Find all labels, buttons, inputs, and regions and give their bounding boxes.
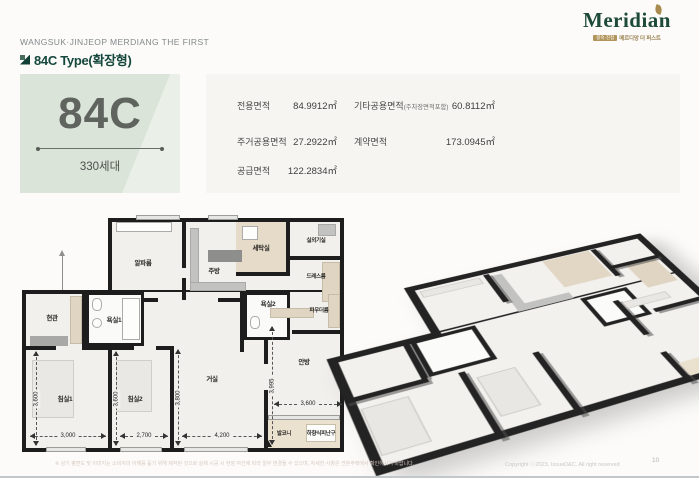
logo-badge: 왕숙·진접: [593, 35, 617, 42]
footer-disclaimer: ※ 상기 평면도 및 이미지는 소비자의 이해를 돕기 위해 제작된 것으로 실…: [55, 460, 485, 467]
toilet: [92, 298, 102, 311]
sink: [92, 318, 102, 328]
page-number: 10: [652, 457, 659, 464]
area-value: 84.9912㎡: [237, 98, 337, 112]
room-label-entrance: 현관: [46, 312, 57, 322]
dimension-bed1-width: 3,000: [30, 436, 106, 437]
window: [184, 447, 248, 452]
room-label-bath1: 욕실1: [107, 314, 122, 324]
area-value: 60.8112㎡: [395, 98, 495, 112]
shoe-cabinet: [70, 296, 82, 344]
room-label-living: 거실: [206, 373, 217, 383]
window: [136, 215, 180, 220]
toilet: [250, 316, 260, 329]
entrance-arrow-icon: [62, 256, 63, 290]
bathtub: [122, 298, 140, 340]
kitchen-counter: [190, 228, 199, 290]
dimension-bed1-height: 3,600: [36, 352, 37, 445]
unit-summary-block: 84C 330세대: [20, 74, 180, 193]
room-label-laundry: 세탁실: [252, 242, 269, 252]
room-label-bed1: 침실1: [58, 393, 73, 403]
room-label-bath2: 욕실2: [261, 298, 276, 308]
area-label: 계약면적: [354, 135, 387, 148]
room-label-balcony: 발코니: [277, 429, 291, 437]
dimension-living-width: 4,200: [182, 436, 262, 437]
room-label-alpha: 알파룸: [134, 257, 151, 267]
logo-subtitle: 메르디앙 더 퍼스트: [619, 34, 661, 42]
room-label-powder: 파우더룸: [309, 306, 328, 314]
room-label-kitchen: 주방: [208, 265, 219, 275]
households-count: 330세대: [20, 158, 180, 174]
dimension-bed2-width: 2,700: [120, 436, 168, 437]
bed: [116, 360, 152, 412]
logo-subtitle-row: 왕숙·진접 메르디앙 더 퍼스트: [567, 34, 687, 42]
page-title: 84C Type(확장형): [20, 50, 131, 69]
dimension-master-height: 3,995: [272, 327, 273, 444]
window: [46, 447, 86, 452]
room-label-master: 안방: [298, 356, 309, 366]
room-label-ac: 실외기실: [306, 236, 325, 244]
washer: [242, 226, 258, 240]
window: [120, 447, 162, 452]
2d-floor-plan: 알파룸 주방 세탁실 실외기실 드레스룸 현관 욕실1 욕실2 파우더룸 침실1…: [22, 214, 346, 456]
kitchen-counter: [190, 282, 246, 291]
area-value: 173.0945㎡: [395, 134, 495, 148]
alpha-closet: [116, 222, 172, 232]
entrance-mat: [30, 336, 68, 346]
balcony-window: [268, 415, 340, 420]
area-value: 27.2922㎡: [237, 134, 337, 148]
project-name: WANGSUK·JINJEOP MERDIANG THE FIRST: [20, 37, 209, 47]
unit-code: 84C: [20, 92, 180, 136]
brochure-page: WANGSUK·JINJEOP MERDIANG THE FIRST 84C T…: [0, 0, 699, 482]
title-bullet-icon: [20, 55, 30, 65]
divider: [38, 148, 162, 149]
room-label-bed2: 침실2: [128, 393, 143, 403]
room-label-dress: 드레스룸: [306, 272, 325, 280]
window: [208, 215, 238, 220]
footer-copyright: Copyright ⓒ2023, IssueD&C. All right res…: [505, 460, 620, 468]
area-value: 122.2834㎡: [237, 163, 337, 177]
dimension-living-height: 3,800: [178, 350, 179, 445]
dimension-bed2-height: 3,600: [116, 352, 117, 445]
room-label-escape: 하향식피난구: [307, 429, 336, 437]
dimension-master-width: 3,600: [274, 404, 342, 405]
kitchen-island: [208, 250, 242, 262]
3d-floor-plan: [366, 204, 698, 466]
ac-unit: [318, 224, 336, 236]
unit-title: 84C Type(확장형): [34, 50, 131, 69]
brand-logo: Meridian 왕숙·진접 메르디앙 더 퍼스트: [567, 8, 687, 42]
